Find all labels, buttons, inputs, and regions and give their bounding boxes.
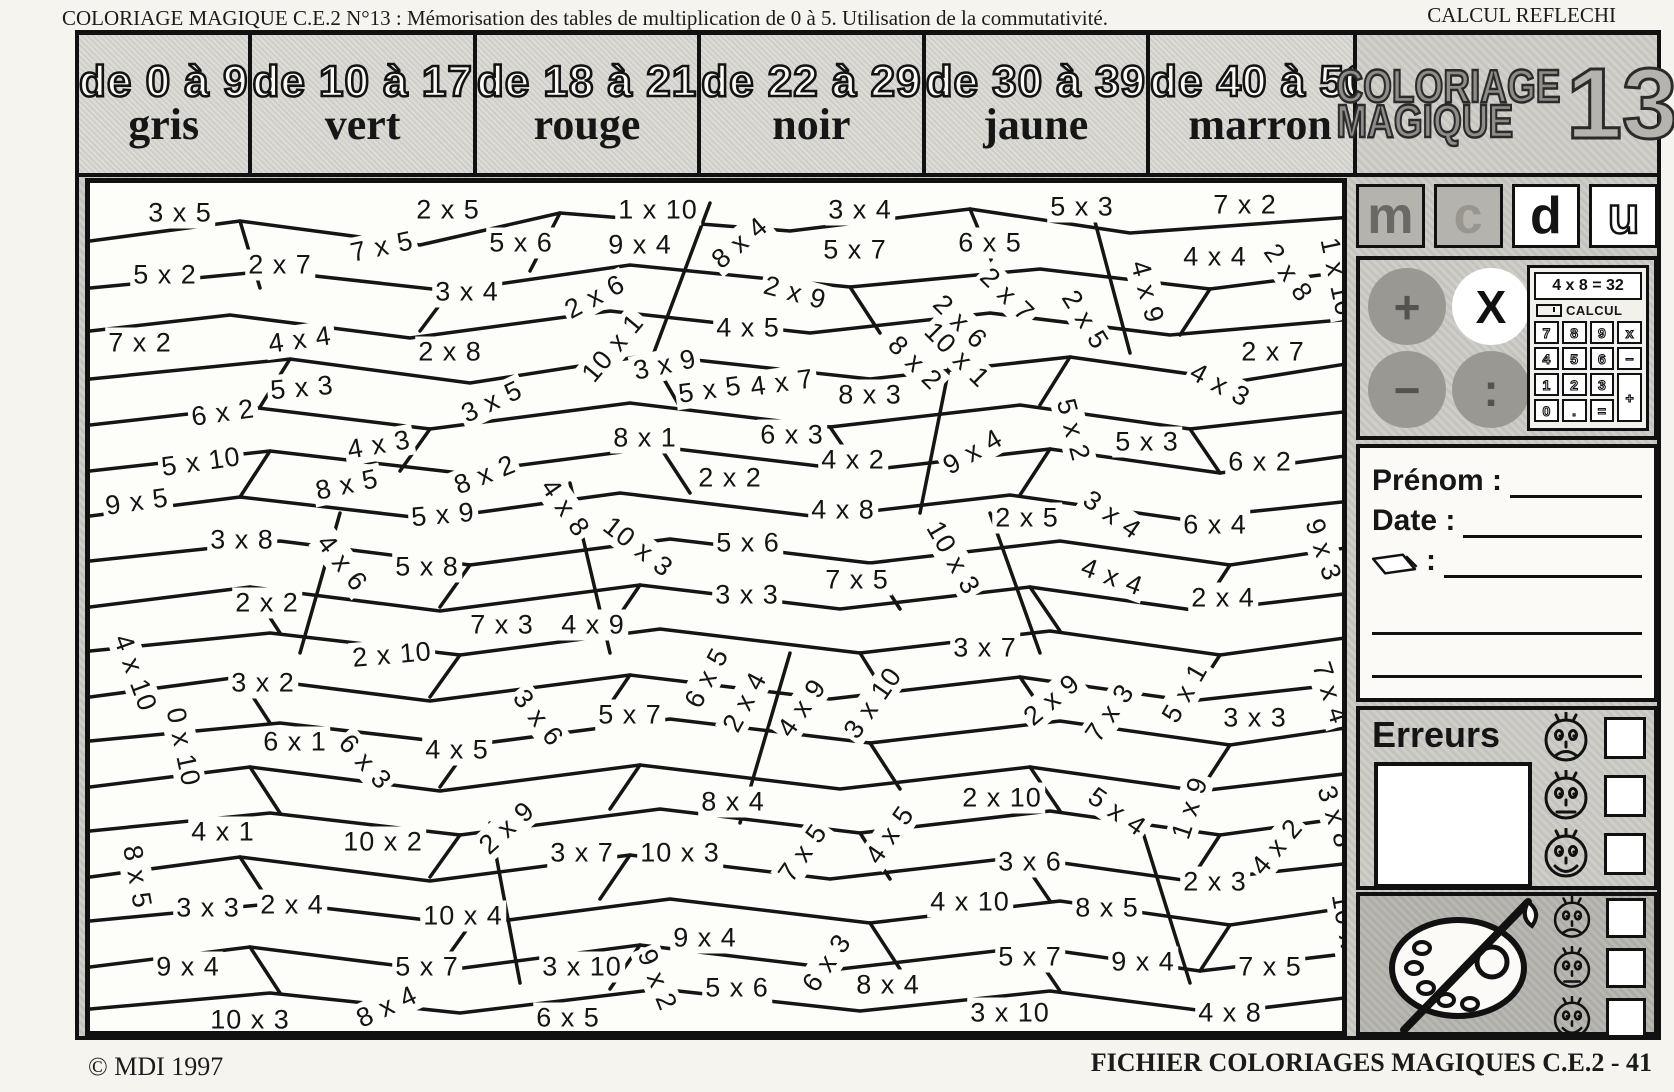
date-line: [1463, 505, 1642, 538]
puzzle-cell: 2 x 5: [992, 503, 1062, 534]
puzzle-cell: 3 x 4: [432, 277, 502, 308]
face-row-sad: [1550, 896, 1646, 940]
date-label: Date :: [1372, 504, 1455, 538]
puzzle-cell: 4 x 5: [713, 313, 783, 344]
puzzle-cell: 6 x 5: [533, 1003, 603, 1034]
operation-circles: +X−:: [1368, 268, 1530, 428]
puzzle-cell: 2 x 8: [415, 337, 485, 368]
blank-line-2: [1372, 635, 1642, 678]
calc-key-9: 9: [1590, 321, 1615, 344]
erreurs-faces: [1540, 712, 1646, 880]
puzzle-cell: 3 x 3: [173, 893, 243, 924]
place-value-m: m: [1356, 184, 1425, 248]
puzzle-cell: 3 x 6: [995, 847, 1065, 878]
puzzle-cell: 3 x 10: [539, 952, 625, 983]
legend-color-name: jaune: [983, 103, 1088, 148]
palette-faces: [1550, 896, 1646, 1040]
puzzle-cell: 3 x 4: [825, 195, 895, 226]
calc-key-5: 5: [1562, 347, 1587, 370]
puzzle-cell: 3 x 3: [1220, 703, 1290, 734]
puzzle-cell: 3 x 7: [950, 633, 1020, 664]
puzzle-cell: 3 x 5: [145, 198, 215, 229]
puzzle-cell: 4 x 8: [1195, 998, 1265, 1029]
operation-times-icon: X: [1452, 268, 1530, 345]
legend-color-name: rouge: [534, 103, 641, 148]
operation-plus-icon: +: [1368, 268, 1446, 345]
copyright: © MDI 1997: [88, 1052, 223, 1082]
sad-face-icon: [1550, 896, 1594, 940]
calc-key-6: 6: [1590, 347, 1615, 370]
prenom-line: [1510, 465, 1642, 498]
exercise-line: [1444, 545, 1642, 578]
happy-face-icon: [1550, 996, 1594, 1040]
puzzle-cell: 5 x 7: [820, 235, 890, 266]
puzzle-cell: 10 x 3: [207, 1005, 293, 1036]
worksheet-page: COLORIAGE MAGIQUE C.E.2 N°13 : Mémorisat…: [0, 0, 1674, 1092]
puzzle-cell: 2 x 4: [257, 890, 327, 921]
calculator-icon: [1536, 304, 1562, 317]
student-info-form: Prénom : Date : :: [1356, 444, 1658, 702]
worksheet-number: 13: [1566, 54, 1674, 154]
footer-reference: FICHIER COLORIAGES MAGIQUES C.E.2 - 41: [1091, 1048, 1652, 1078]
calc-key-0: 0: [1534, 399, 1559, 422]
calculator-display: 4 x 8 = 32: [1534, 272, 1642, 300]
puzzle-cell: 6 x 2: [1225, 447, 1295, 478]
puzzle-cell: 10 x 2: [340, 827, 426, 858]
happy-face-icon: [1540, 828, 1592, 880]
legend-box-rouge: de 18 à 21rouge: [473, 31, 701, 177]
calc-key-2: 2: [1562, 373, 1587, 396]
puzzle-cell: 3 x 7: [547, 838, 617, 869]
face-row-happy: [1540, 828, 1646, 880]
place-value-c: c: [1434, 184, 1503, 248]
puzzle-cell: 3 x 10: [967, 998, 1053, 1029]
face-row-sad: [1540, 712, 1646, 764]
legend-range: de 18 à 21: [477, 60, 697, 105]
calc-key-x: x: [1617, 321, 1642, 344]
puzzle-cell: 5 x 8: [392, 552, 462, 583]
sad-checkbox: [1604, 717, 1646, 759]
pencil-colon: :: [1426, 544, 1436, 578]
puzzle-cell: 10 x 4: [420, 901, 506, 932]
puzzle-cell: 4 x 10: [927, 887, 1013, 918]
puzzle-cell: 5 x 3: [266, 370, 338, 407]
legend-box-vert: de 10 à 17vert: [248, 31, 476, 177]
sad-face-icon: [1540, 712, 1592, 764]
puzzle-cell: 6 x 3: [757, 420, 827, 451]
sad-checkbox: [1606, 898, 1646, 938]
calc-key-1: 1: [1534, 373, 1559, 396]
face-row-neutral: [1550, 946, 1646, 990]
puzzle-cell: 2 x 3: [1180, 867, 1250, 898]
puzzle-cell: 5 x 6: [486, 228, 556, 259]
puzzle-cell: 5 x 6: [702, 973, 772, 1004]
legend-range: de 30 à 39: [926, 60, 1146, 105]
puzzle-cell: 2 x 4: [1188, 583, 1258, 614]
puzzle-cell: 9 x 4: [670, 923, 740, 954]
puzzle-cell: 2 x 5: [413, 195, 483, 226]
legend-box-jaune: de 30 à 39jaune: [922, 31, 1150, 177]
puzzle-cell: 5 x 3: [1112, 427, 1182, 458]
puzzle-cell: 10 x 3: [637, 838, 723, 869]
puzzle-cell: 2 x 7: [1238, 337, 1308, 368]
puzzle-cell: 7 x 5: [1235, 952, 1305, 983]
calc-key-+: +: [1617, 373, 1642, 422]
puzzle-cell: 2 x 10: [959, 783, 1045, 814]
neutral-face-icon: [1540, 770, 1592, 822]
operation-divide-icon: :: [1452, 351, 1530, 428]
palette-icon: [1370, 896, 1580, 1038]
puzzle-cell: 6 x 5: [955, 228, 1025, 259]
puzzle-cell: 4 x 8: [808, 495, 878, 526]
puzzle-cell: 3 x 2: [228, 668, 298, 699]
face-row-happy: [1550, 996, 1646, 1040]
puzzle-cell: 6 x 4: [1180, 510, 1250, 541]
puzzle-cell: 7 x 3: [467, 610, 537, 641]
puzzle-cell: 5 x 7: [995, 942, 1065, 973]
happy-checkbox: [1604, 833, 1646, 875]
calc-key-7: 7: [1534, 321, 1559, 344]
blank-line-1: [1372, 592, 1642, 635]
header-right-label: CALCUL REFLECHI: [1427, 3, 1616, 28]
page-title: COLORIAGE MAGIQUE C.E.2 N°13 : Mémorisat…: [62, 6, 1108, 31]
puzzle-cell: 4 x 4: [1180, 242, 1250, 273]
legend-color-name: gris: [128, 103, 199, 148]
place-value-row: mcdu: [1356, 184, 1658, 248]
legend-color-name: vert: [325, 103, 401, 148]
puzzle-cell: 3 x 3: [712, 580, 782, 611]
puzzle-cell: 7 x 5: [822, 565, 892, 596]
legend-range: de 10 à 17: [252, 60, 472, 105]
puzzle-cell: 8 x 1: [610, 423, 680, 454]
puzzle-area: 3 x 52 x 51 x 103 x 45 x 37 x 25 x 22 x …: [85, 178, 1347, 1036]
neutral-face-icon: [1550, 946, 1594, 990]
legend-color-name: noir: [772, 103, 850, 148]
title-word-2: MAGIQUE: [1336, 100, 1560, 144]
place-value-d: d: [1512, 184, 1581, 248]
happy-checkbox: [1606, 998, 1646, 1038]
puzzle-cell: 2 x 2: [695, 463, 765, 494]
puzzle-cell: 8 x 3: [835, 380, 905, 411]
puzzle-cell: 4 x 9: [558, 610, 628, 641]
erreurs-label: Erreurs: [1372, 714, 1500, 756]
pencil-icon: [1372, 552, 1418, 578]
calc-key-.: .: [1562, 399, 1587, 422]
legend-box-noir: de 22 à 29noir: [697, 31, 925, 177]
calculator-keypad: 789x456−123+0.=: [1534, 321, 1642, 422]
prenom-label: Prénom :: [1372, 464, 1502, 498]
calculator: 4 x 8 = 32 CALCUL 789x456−123+0.=: [1527, 265, 1649, 431]
calc-key-8: 8: [1562, 321, 1587, 344]
puzzle-cell: 2 x 7: [245, 250, 315, 281]
calculator-label: CALCUL: [1566, 303, 1622, 318]
puzzle-cell: 5 x 2: [130, 260, 200, 291]
color-legend: de 0 à 9grisde 10 à 17vertde 18 à 21roug…: [75, 31, 1348, 177]
erreurs-count-box: [1374, 762, 1532, 888]
puzzle-cell: 8 x 5: [1072, 893, 1142, 924]
calc-key-4: 4: [1534, 347, 1559, 370]
puzzle-cell: 5 x 6: [713, 528, 783, 559]
place-value-u: u: [1589, 184, 1658, 248]
puzzle-cell: 5 x 7: [392, 952, 462, 983]
puzzle-cell: 8 x 4: [853, 970, 923, 1001]
calc-key-=: =: [1590, 399, 1615, 422]
puzzle-cell: 6 x 1: [260, 727, 330, 758]
erreurs-panel: Erreurs: [1356, 706, 1658, 890]
puzzle-cell: 7 x 2: [105, 328, 175, 359]
legend-color-name: marron: [1188, 103, 1331, 148]
puzzle-cell: 4 x 5: [422, 735, 492, 766]
palette-panel: [1356, 892, 1658, 1036]
puzzle-cell: 2 x 2: [232, 588, 302, 619]
operations-panel: +X−: 4 x 8 = 32 CALCUL 789x456−123+0.=: [1356, 256, 1658, 440]
face-row-neutral: [1540, 770, 1646, 822]
operation-minus-icon: −: [1368, 351, 1446, 428]
puzzle-cell: 5 x 7: [595, 700, 665, 731]
puzzle-cell: 4 x 1: [188, 817, 258, 848]
puzzle-cell: 5 x 3: [1047, 192, 1117, 223]
neutral-checkbox: [1606, 948, 1646, 988]
puzzle-cell: 7 x 2: [1210, 190, 1280, 221]
neutral-checkbox: [1604, 775, 1646, 817]
title-panel: COLORIAGE MAGIQUE 13: [1353, 31, 1661, 177]
legend-range: de 0 à 9: [79, 60, 248, 105]
puzzle-cell: 1 x 10: [615, 195, 701, 226]
puzzle-cell: 9 x 4: [153, 952, 223, 983]
puzzle-cell: 8 x 4: [698, 787, 768, 818]
puzzle-cell: 3 x 8: [207, 525, 277, 556]
legend-box-gris: de 0 à 9gris: [75, 31, 252, 177]
legend-range: de 22 à 29: [701, 60, 921, 105]
puzzle-cell: 5 x 9: [407, 497, 479, 534]
puzzle-cell: 9 x 4: [605, 230, 675, 261]
calc-key-3: 3: [1590, 373, 1615, 396]
puzzle-cell: 9 x 4: [1108, 947, 1178, 978]
calc-key-−: −: [1617, 347, 1642, 370]
puzzle-cell: 4 x 2: [818, 445, 888, 476]
